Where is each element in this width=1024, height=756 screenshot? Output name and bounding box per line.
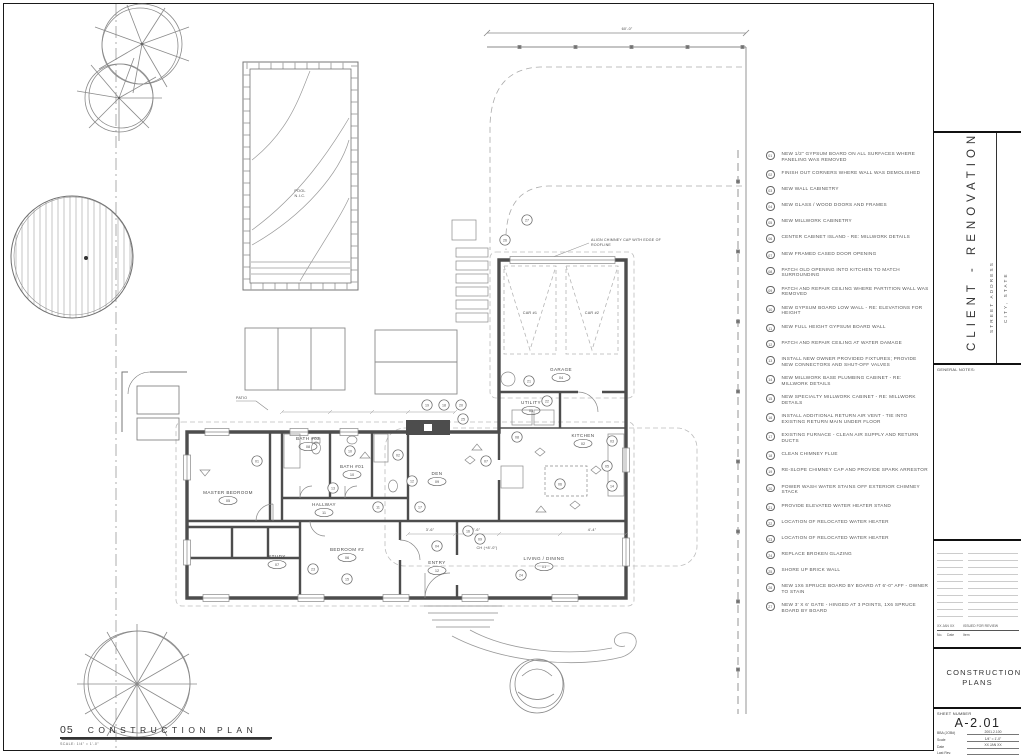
project-divider [996, 133, 997, 363]
revision-lines [968, 553, 1018, 619]
pool-label-2: N.I.C. [295, 194, 306, 198]
tree-bottom-middle [510, 659, 564, 713]
keynote-number-bubble: 23 [766, 535, 775, 544]
revision-headers: No. Date Item [937, 633, 1019, 637]
keynote-text: NEW GYPSUM BOARD LOW WALL - RE: ELEVATIO… [782, 305, 930, 316]
room-tag-number: 11 [322, 510, 326, 515]
plan-keynote-number: 04 [435, 544, 439, 548]
plan-keynote-number: 27 [525, 218, 529, 222]
revision-row: XX JAN XX ISSUED FOR REVIEW [937, 624, 1019, 631]
keynote-number-bubble: 06 [766, 234, 775, 243]
plan-keynote-number: 10 [348, 449, 352, 453]
keynote-text: SHORE UP BRICK WALL [782, 567, 930, 573]
kitchen-fixtures [200, 434, 624, 512]
keynote-number-bubble: 11 [766, 324, 775, 333]
keynote-item: 25SHORE UP BRICK WALL [766, 567, 934, 576]
plan-keynote-number: 15 [345, 577, 349, 581]
keynote-number-bubble: 21 [766, 503, 775, 512]
keynote-item: 20POWER WASH WATER STAINS OFF EXTERIOR C… [766, 484, 934, 495]
plan-keynote-number: 26 [503, 238, 507, 242]
room-tag-number: 01 [542, 564, 546, 569]
keynote-legend: 01NEW 1/2" GYPSUM BOARD ON ALL SURFACES … [766, 151, 934, 621]
keynote-number-bubble: 02 [766, 170, 775, 179]
plan-keynote-number: 01 [255, 459, 259, 463]
plan-keynote-number: 03 [610, 439, 614, 443]
keynote-text: FINISH OUT CORNERS WHERE WALL WAS DEMOLI… [782, 170, 930, 176]
room-tag-number: 12 [435, 568, 439, 573]
tree-bottom-left [77, 624, 197, 740]
keynote-item: 09PATCH AND REPAIR CEILING WHERE PARTITI… [766, 286, 934, 297]
keynote-item: 07NEW FRAMED CASED DOOR OPENING [766, 251, 934, 260]
keynote-number-bubble: 03 [766, 186, 775, 195]
project-info-section: CLIENT - RENOVATION STREET ADDRESS CITY,… [934, 133, 1021, 365]
scale-value: 1/4" = 1'-0" [967, 737, 1019, 742]
keynote-item: 04NEW GLASS / WOOD DOORS AND FRAMES [766, 202, 934, 211]
keynote-text: NEW 1/2" GYPSUM BOARD ON ALL SURFACES WH… [782, 151, 930, 162]
plan-keynote-number: 24 [519, 573, 523, 577]
keynote-item: 02FINISH OUT CORNERS WHERE WALL WAS DEMO… [766, 170, 934, 179]
bath-fixtures [284, 434, 398, 492]
sheet-number-section: SHEET NUMBER A-2.01 BBA (JOB#)2001.2.100… [934, 709, 1021, 751]
room-label: BATH #01 [340, 464, 364, 469]
room-tag-number: 10 [350, 472, 355, 477]
plan-keynote-number: 09 [478, 537, 482, 541]
room-label: MASTER BEDROOM [203, 490, 253, 495]
dim-3: 4'-4" [588, 528, 597, 532]
keynote-item: 08PATCH OLD OPENING INTO KITCHEN TO MATC… [766, 267, 934, 278]
svg-text:ROOFLINE: ROOFLINE [591, 243, 611, 247]
plan-keynote-number: 07 [484, 459, 488, 463]
room-tag-number: 03 [529, 408, 533, 413]
keynote-number-bubble: 01 [766, 151, 775, 160]
room-label: ENTRY [428, 560, 446, 565]
room-tag-number: 04 [559, 375, 564, 380]
keynote-number-bubble: 09 [766, 286, 775, 295]
keynote-number-bubble: 13 [766, 356, 775, 365]
room-tag-number: 07 [275, 562, 279, 567]
pool-label: POOL [294, 189, 305, 193]
keynote-item: 01NEW 1/2" GYPSUM BOARD ON ALL SURFACES … [766, 151, 934, 162]
plan-keynote-number: 23 [311, 567, 315, 571]
keynote-text: NEW MILLWORK BASE PLUMBING CABINET - RE:… [782, 375, 930, 386]
house-walls [187, 260, 626, 598]
plan-keynote-number: 13 [331, 486, 335, 490]
view-scale: SCALE: 1/4" = 1'-0" [60, 742, 300, 746]
keynote-text: NEW MILLWORK CABINETRY [782, 218, 930, 224]
job-number-value: 2001.2.100 [967, 730, 1019, 735]
room-label: BATH #02 [296, 436, 320, 441]
keynote-number-bubble: 15 [766, 394, 775, 403]
keynote-item: 10NEW GYPSUM BOARD LOW WALL - RE: ELEVAT… [766, 305, 934, 316]
keynote-text: NEW WALL CABINETRY [782, 186, 930, 192]
sheet-number: A-2.01 [934, 716, 1021, 730]
room-tag-number: 06 [345, 555, 349, 560]
keynote-text: CENTER CABINET ISLAND - RE: MILLWORK DET… [782, 234, 930, 240]
room-tag-number: 02 [581, 441, 585, 446]
keynote-number-bubble: 10 [766, 305, 775, 314]
room-label: BEDROOM #2 [330, 547, 364, 552]
plan-keynote-number: 21 [527, 379, 531, 383]
keynote-number-bubble: 24 [766, 551, 775, 560]
general-notes-section: GENERAL NOTES: [934, 365, 1021, 541]
revision-date: XX JAN XX [937, 624, 963, 628]
car1-label: CAR #1 [523, 311, 538, 315]
keynote-item: 19RE-SLOPE CHIMNEY CAP AND PROVIDE SPARK… [766, 467, 934, 476]
keynote-number-bubble: 25 [766, 567, 775, 576]
room-tag-number: 05 [226, 498, 230, 503]
keynote-text: NEW GLASS / WOOD DOORS AND FRAMES [782, 202, 930, 208]
general-notes-label: GENERAL NOTES: [937, 367, 975, 372]
water-heater [501, 372, 515, 386]
ceiling-height-note: CH (+8'-0") [476, 546, 498, 550]
plan-keynote-number: 12 [410, 479, 414, 483]
revision-item: ISSUED FOR REVIEW [963, 624, 998, 628]
plan-keynote-number: 06 [558, 482, 562, 486]
plan-keynote-number: 14 [610, 484, 614, 488]
room-tag-number: 08 [306, 444, 310, 449]
keynote-text: NEW SPECIALTY MILLWORK CABINET - RE: MIL… [782, 394, 930, 405]
last-rev-value [967, 750, 1019, 755]
patio-slabs [245, 328, 457, 394]
keynote-number-bubble: 14 [766, 375, 775, 384]
keynote-item: 17EXISTING FURNACE - CLEAN AIR SUPPLY AN… [766, 432, 934, 443]
dimension-strings [280, 410, 628, 536]
plan-keynote-number: 25 [461, 417, 465, 421]
keynote-number-bubble: 19 [766, 467, 775, 476]
keynote-text: INSTALL NEW OWNER PROVIDED FIXTURES; PRO… [782, 356, 930, 367]
room-label: UTILITY [521, 400, 541, 405]
keynote-text: PATCH AND REPAIR CEILING AT WATER DAMAGE [782, 340, 930, 346]
keynote-text: LOCATION OF RELOCATED WATER HEATER [782, 535, 930, 541]
keynote-text: LOCATION OF RELOCATED WATER HEATER [782, 519, 930, 525]
west-porch [122, 372, 187, 440]
keynote-item: 11NEW FULL HEIGHT GYPSUM BOARD WALL [766, 324, 934, 333]
keynote-item: 23LOCATION OF RELOCATED WATER HEATER [766, 535, 934, 544]
keynote-item: 18CLEAN CHIMNEY FLUE [766, 451, 934, 460]
keynote-number-bubble: 04 [766, 202, 775, 211]
logo-area [934, 3, 1021, 133]
dim-1: 3'-6" [426, 528, 435, 532]
date-value: XX JAN XX [967, 743, 1019, 748]
keynote-item: 15NEW SPECIALTY MILLWORK CABINET - RE: M… [766, 394, 934, 405]
keynote-item: 05NEW MILLWORK CABINETRY [766, 218, 934, 227]
dimension-text: 60'-0" [622, 27, 633, 31]
plan-keynote-number: 11 [376, 505, 380, 509]
view-title: CONSTRUCTION PLAN [88, 725, 258, 735]
keynote-number-bubble: 05 [766, 218, 775, 227]
keynote-text: NEW 3' x 6' GATE - HINGED AT 3 POINTS, 1… [782, 602, 930, 613]
street-address: STREET ADDRESS [989, 173, 994, 333]
keynote-number-bubble: 20 [766, 484, 775, 493]
plan-keynote-number: 19 [425, 403, 429, 407]
view-title-block: 05 CONSTRUCTION PLAN SCALE: 1/4" = 1'-0" [60, 724, 300, 746]
keynote-item: 26NEW 1x6 SPRUCE BOARD BY BOARD AT 6'-0"… [766, 583, 934, 594]
keynote-text: NEW FULL HEIGHT GYPSUM BOARD WALL [782, 324, 930, 330]
room-label: HALLWAY [312, 502, 336, 507]
revision-section: XX JAN XX ISSUED FOR REVIEW No. Date Ite… [934, 541, 1021, 649]
plan-keynote-number: 05 [605, 464, 609, 468]
keynote-text: PROVIDE ELEVATED WATER HEATER STAND [782, 503, 930, 509]
keynote-text: NEW 1x6 SPRUCE BOARD BY BOARD AT 6'-0" A… [782, 583, 930, 594]
plan-keynote-number: 20 [459, 403, 463, 407]
plan-keynote-number: 08 [515, 435, 519, 439]
room-label: STUDY [268, 554, 286, 559]
room-label: KITCHEN [572, 433, 595, 438]
plan-keynote-number: 02 [396, 453, 400, 457]
keynote-item: 14NEW MILLWORK BASE PLUMBING CABINET - R… [766, 375, 934, 386]
car2-label: CAR #2 [585, 311, 600, 315]
keynote-item: 21PROVIDE ELEVATED WATER HEATER STAND [766, 503, 934, 512]
city-state: CITY, STATE [1003, 183, 1008, 323]
keynote-text: CLEAN CHIMNEY FLUE [782, 451, 930, 457]
plan-keynote-number: 22 [545, 399, 549, 403]
plan-keynote-number: 17 [418, 505, 422, 509]
keynote-number-bubble: 27 [766, 602, 775, 611]
keynote-item: 13INSTALL NEW OWNER PROVIDED FIXTURES; P… [766, 356, 934, 367]
keynote-item: 24REPLACE BROKEN GLAZING [766, 551, 934, 560]
keynote-number-bubble: 16 [766, 413, 775, 422]
keynote-text: INSTALL ADDITIONAL RETURN AIR VENT - TIE… [782, 413, 930, 424]
keynote-number-bubble: 17 [766, 432, 775, 441]
keynote-number-bubble: 12 [766, 340, 775, 349]
project-name: CLIENT - RENOVATION [966, 147, 978, 351]
room-label: DEN [432, 471, 443, 476]
keynote-number-bubble: 26 [766, 583, 775, 592]
keynote-item: 03NEW WALL CABINETRY [766, 186, 934, 195]
patio-callout: PATIO [236, 396, 268, 410]
keynote-text: POWER WASH WATER STAINS OFF EXTERIOR CHI… [782, 484, 930, 495]
keynote-text: NEW FRAMED CASED DOOR OPENING [782, 251, 930, 257]
keynote-text: EXISTING FURNACE - CLEAN AIR SUPPLY AND … [782, 432, 930, 443]
stepping-stones [452, 220, 488, 322]
keynote-text: REPLACE BROKEN GLAZING [782, 551, 930, 557]
keynote-item: 22LOCATION OF RELOCATED WATER HEATER [766, 519, 934, 528]
entry-steps [424, 606, 502, 627]
tree-top-left [77, 4, 189, 141]
revision-lines [937, 553, 963, 619]
sheet-set-title-section: CONSTRUCTION PLANS [934, 649, 1021, 709]
sheet-info-fields: BBA (JOB#)2001.2.100 Scale1/4" = 1'-0" D… [937, 730, 1019, 756]
site-dimension: 60'-0" [484, 27, 749, 36]
keynote-text: RE-SLOPE CHIMNEY CAP AND PROVIDE SPARK A… [782, 467, 930, 473]
pool: POOL N.I.C. [243, 62, 358, 290]
keynote-item: 16INSTALL ADDITIONAL RETURN AIR VENT - T… [766, 413, 934, 424]
keynote-item: 27NEW 3' x 6' GATE - HINGED AT 3 POINTS,… [766, 602, 934, 613]
room-label: LIVING / DINING [524, 556, 565, 561]
room-tag-number: 09 [435, 479, 439, 484]
room-label: GARAGE [550, 367, 572, 372]
svg-text:PATIO: PATIO [236, 396, 247, 400]
sheet-set-title: CONSTRUCTION PLANS [947, 668, 1009, 688]
tree-large-left [11, 188, 133, 327]
keynote-number-bubble: 18 [766, 451, 775, 460]
view-number: 05 [60, 724, 74, 736]
keynote-item: 12PATCH AND REPAIR CEILING AT WATER DAMA… [766, 340, 934, 349]
plan-keynote-number: 16 [466, 529, 470, 533]
keynote-number-bubble: 08 [766, 267, 775, 276]
walkway-path [452, 630, 636, 663]
title-block: CLIENT - RENOVATION STREET ADDRESS CITY,… [933, 3, 1021, 751]
keynote-item: 06CENTER CABINET ISLAND - RE: MILLWORK D… [766, 234, 934, 243]
keynote-text: PATCH AND REPAIR CEILING WHERE PARTITION… [782, 286, 930, 297]
svg-text:ALIGN CHIMNEY CAP WITH EDGE OF: ALIGN CHIMNEY CAP WITH EDGE OF [591, 238, 662, 242]
garage-car-outlines [504, 266, 618, 354]
plan-keynote-number: 18 [442, 403, 446, 407]
keynote-number-bubble: 22 [766, 519, 775, 528]
keynote-text: PATCH OLD OPENING INTO KITCHEN TO MATCH … [782, 267, 930, 278]
keynote-number-bubble: 07 [766, 251, 775, 260]
